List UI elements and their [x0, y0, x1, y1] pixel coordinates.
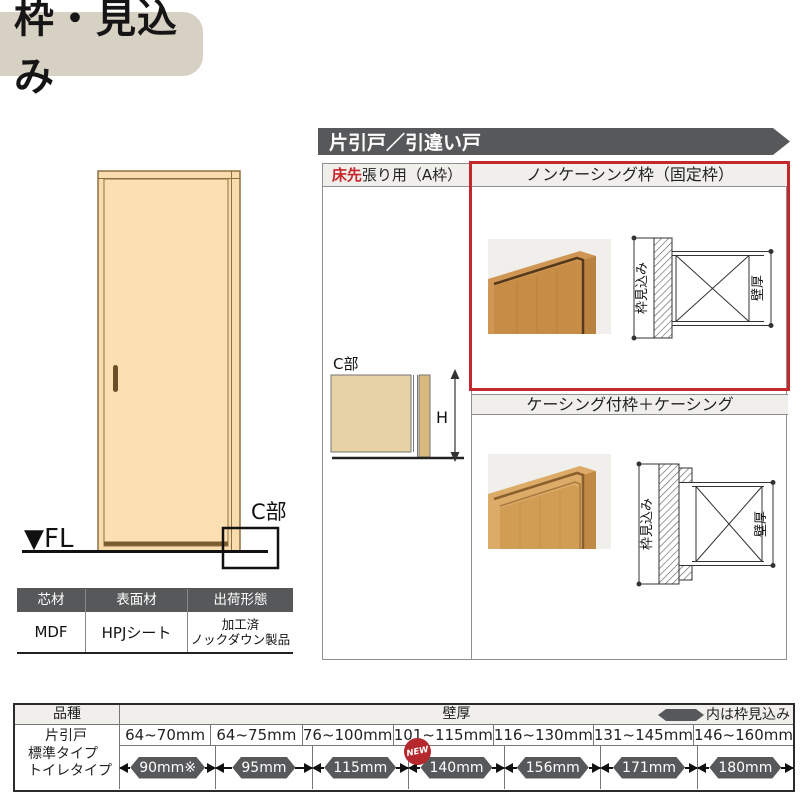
a-frame-header-rest: 張り用（A枠）: [362, 166, 462, 184]
floor-level-label: ▼FL: [24, 524, 74, 554]
product-line: トイレタイプ: [15, 763, 119, 780]
door-handle: [113, 365, 118, 392]
material-header-surface: 表面材: [85, 589, 187, 612]
frame-depth-badge: 95mm: [232, 757, 295, 779]
height-dimension-label: H: [436, 408, 448, 427]
casing-section-header: ケーシング付枠＋ケーシング: [472, 394, 788, 415]
a-frame-column-header: 床先張り用（A枠）: [323, 164, 471, 187]
material-value-surface: HPJシート: [85, 612, 187, 652]
wall-range-cell: 64~75mm: [210, 725, 301, 745]
frame-depth-cell: 95mm: [215, 746, 311, 789]
wall-range-cell: 131~145mm: [593, 725, 693, 745]
legend-badge-icon: [658, 709, 704, 721]
material-header-shipping: 出荷形態: [187, 589, 293, 612]
casing-frame-photo: [488, 454, 611, 549]
material-value-core: MDF: [17, 612, 85, 652]
frame-depth-cell: 171mm: [600, 746, 696, 789]
frame-depth-badge: 140mm: [420, 757, 492, 779]
wall-range-row: 64~70mm 64~75mm 76~100mm 101~115mm 116~1…: [120, 725, 793, 746]
frame-depth-cell: 90mm※: [120, 746, 215, 789]
door-panel: [104, 179, 228, 546]
material-table: 芯材 表面材 出荷形態 MDF HPJシート 加工済 ノックダウン製品: [17, 588, 293, 654]
wall-range-cell: 76~100mm: [302, 725, 393, 745]
noncasing-section-header: ノンケーシング枠（固定枠）: [472, 164, 788, 187]
product-line: 標準タイプ: [15, 746, 119, 763]
noncasing-figures: 枠見込み 壁厚: [472, 187, 788, 394]
frame-depth-badge: 115mm: [324, 757, 396, 779]
product-cell: 片引戸 標準タイプ トイレタイプ: [15, 725, 120, 789]
wall-thickness-header-label: 壁厚: [443, 706, 471, 722]
c-part-detail-drawing: C部 H: [324, 349, 471, 474]
material-header-core: 芯材: [17, 589, 85, 612]
frame-comparison-table: 床先張り用（A枠） ノンケーシング枠（固定枠） C部 H: [322, 163, 787, 660]
wall-range-cell: 116~130mm: [493, 725, 593, 745]
wall-thickness-label: 壁厚: [751, 275, 766, 301]
frame-depth-cell: 115mm: [312, 746, 408, 789]
frame-depth-row: 90mm※ 95mm 115mm 140mm 156mm 171mm 180mm: [120, 746, 793, 789]
c-part-detail-label: C部: [333, 355, 358, 373]
a-frame-header-red: 床先: [332, 166, 362, 184]
wall-range-cell: 64~70mm: [120, 725, 210, 745]
wall-thickness-spec-table: 品種 壁厚 内は枠見込み 片引戸 標準タイプ トイレタイプ 64~70mm 64…: [13, 703, 795, 792]
frame-depth-badge: 156mm: [517, 757, 589, 779]
wall-thickness-header: 壁厚 内は枠見込み: [120, 705, 793, 724]
frame-depth-label: 枠見込み: [640, 498, 655, 550]
catalog-page: 枠・見込み ▼FL C部 片引戸／引違い戸 床先張り用（A枠） ノンケーシング枠…: [0, 0, 800, 800]
legend: 内は枠見込み: [658, 705, 790, 725]
frame-depth-badge: 171mm: [613, 757, 685, 779]
frame-depth-badge: 180mm: [709, 757, 781, 779]
product-line: 片引戸: [15, 727, 119, 746]
door-type-banner: 片引戸／引違い戸: [318, 128, 790, 155]
door-illustration: ▼FL C部: [0, 160, 300, 580]
frame-depth-badge: 90mm※: [130, 757, 205, 779]
frame-depth-cell: 156mm: [504, 746, 600, 789]
c-part-callout-label: C部: [251, 500, 287, 524]
frame-depth-label: 枠見込み: [635, 262, 650, 314]
noncasing-frame-photo: [488, 239, 611, 334]
legend-label: 内は枠見込み: [706, 706, 790, 725]
wall-range-cell: 146~160mm: [693, 725, 793, 745]
wall-thickness-label: 壁厚: [754, 511, 769, 537]
material-value-shipping: 加工済 ノックダウン製品: [187, 612, 293, 652]
banner-label: 片引戸／引違い戸: [329, 128, 481, 155]
page-title: 枠・見込み: [0, 12, 203, 76]
frame-depth-cell: 180mm: [697, 746, 793, 789]
casing-figures: 枠見込み 壁厚: [472, 416, 788, 660]
product-column-header: 品種: [15, 705, 120, 724]
